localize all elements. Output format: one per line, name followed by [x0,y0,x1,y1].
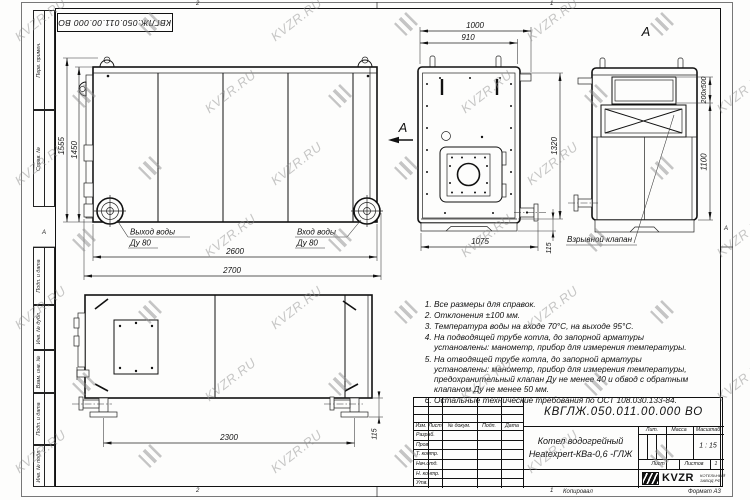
support-feet [72,397,368,417]
rear-view: А [566,24,713,245]
front-view: Выход воды Ду 80 Вход воды Ду 80 1555 14… [57,57,413,280]
inlet-label: Вход воды [297,228,336,237]
dim-2600: 2600 [225,247,244,256]
outlet-label: Выход воды [130,228,175,237]
valve-label: Взрывной клапан [567,235,633,244]
inlet-dn: Ду 80 [296,239,318,248]
dim-115-foot: 115 [372,428,379,439]
dim-1075: 1075 [471,237,489,246]
dim-200x500: 200x500 [701,76,708,104]
hatch-door [114,320,158,374]
dim-2700: 2700 [222,266,241,275]
dim-1320: 1320 [550,137,559,155]
outlet-dn: Ду 80 [129,239,151,248]
explosion-valve [601,105,686,137]
side-view: 2300 115 [72,295,383,447]
view-arrow-label: А [398,120,408,135]
dim-1555: 1555 [57,137,66,155]
drawing-linework: Выход воды Ду 80 Вход воды Ду 80 1555 14… [0,0,750,500]
dim-1450: 1450 [70,141,79,159]
rear-view-title: А [641,24,651,39]
end-view: 1000 910 1320 115 1075 [418,21,563,254]
dim-2300: 2300 [219,433,238,442]
view-arrow-A: А [388,120,413,143]
dim-115-skid: 115 [546,242,553,253]
dim-1000: 1000 [466,21,484,30]
dim-910: 910 [461,33,475,42]
dim-1100: 1100 [700,153,709,171]
drawing-sheet: Выход воды Ду 80 Вход воды Ду 80 1555 14… [0,0,750,500]
burner-plate [440,147,506,202]
